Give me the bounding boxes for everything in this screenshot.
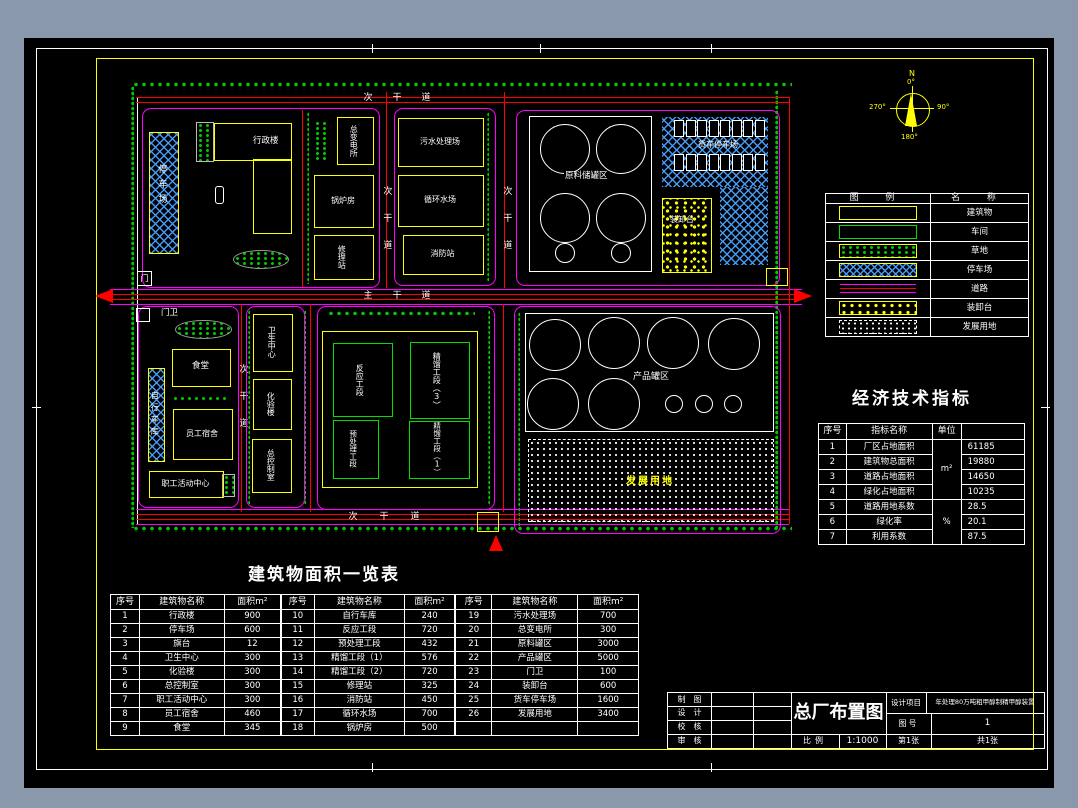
building-cell: 18: [282, 722, 315, 736]
frame-tick: [711, 44, 712, 53]
truck-parking-label: 货车停车场: [698, 140, 738, 149]
building-cell: 700: [405, 708, 455, 722]
econ-cell: 绿化率: [846, 515, 932, 530]
road-line: [136, 97, 789, 98]
building-cell: 10: [282, 610, 315, 624]
econ-table-title: 经济技术指标: [852, 390, 972, 410]
building-row-empty: [456, 722, 639, 736]
building-cell: 450: [405, 694, 455, 708]
building-row: 12预处理工段432: [282, 638, 455, 652]
building-cell: 原料罐区: [492, 638, 578, 652]
product-tank-label: 产品罐区: [633, 372, 669, 382]
legend-building-swatch: [839, 206, 917, 220]
road-arrow-west-icon: [95, 289, 113, 303]
econ-cell: 厂区占地面积: [846, 440, 932, 455]
grass-border-left: [129, 86, 134, 528]
building-cell: 325: [405, 680, 455, 694]
econ-row: 3道路占地面积14650: [819, 470, 1025, 485]
truck-icon: [732, 154, 742, 171]
building-row: 3旗台12: [111, 638, 281, 652]
building-cell: 576: [405, 652, 455, 666]
road-line: [136, 102, 789, 103]
title-block-line: [753, 693, 754, 748]
building-cell: 食堂: [140, 722, 225, 736]
flag-platform: [215, 186, 224, 204]
building-cell: 货车停车场: [492, 694, 578, 708]
parking-lot-label: 停车场: [156, 150, 166, 222]
road-line: [503, 304, 504, 512]
frame-tick: [540, 44, 541, 53]
building-cell: 300: [224, 652, 280, 666]
building-cell: 12: [224, 638, 280, 652]
econ-cell: 4: [819, 485, 847, 500]
compass-0-label: 0°: [907, 79, 915, 86]
econ-cell: 1: [819, 440, 847, 455]
grass-patch: [196, 122, 214, 162]
tank-circle: [588, 317, 640, 369]
building-row: 25货车停车场1600: [456, 694, 639, 708]
building-row: 8员工宿舍460: [111, 708, 281, 722]
building-cell: [492, 722, 578, 736]
econ-cell: 建筑物总面积: [846, 455, 932, 470]
truck-parking-hatch: [720, 187, 768, 265]
building-cell: 修理站: [314, 680, 405, 694]
gate-symbol: 门: [137, 271, 152, 286]
econ-cell: 6: [819, 515, 847, 530]
building-cell: 300: [224, 694, 280, 708]
building-cell: 3: [111, 638, 140, 652]
truck-icon: [755, 120, 765, 137]
building-row: 21原料罐区3000: [456, 638, 639, 652]
building-cell: 职工活动中心: [140, 694, 225, 708]
building-cell: [578, 722, 639, 736]
building-header: 序号: [282, 595, 315, 610]
road-line: [110, 304, 802, 305]
truck-icon: [686, 154, 696, 171]
econ-cell: 2: [819, 455, 847, 470]
building-header: 序号: [111, 595, 140, 610]
building-cell: 11: [282, 624, 315, 638]
building-cell: 720: [405, 666, 455, 680]
building-cell: 460: [224, 708, 280, 722]
building-cell: 行政楼: [140, 610, 225, 624]
building-cell: 9: [111, 722, 140, 736]
building-cell: 总控制室: [140, 680, 225, 694]
truck-icon: [732, 120, 742, 137]
econ-unit-area: m²: [932, 440, 961, 500]
building-cell: 700: [578, 610, 639, 624]
frame-tick: [711, 763, 712, 772]
building-row: 6总控制室300: [111, 680, 281, 694]
tank-circle: [527, 378, 579, 430]
truck-icon: [697, 154, 707, 171]
road-label-secondary-v1: 次干道: [381, 186, 391, 274]
building-header: 建筑物名称: [492, 595, 578, 610]
control-room-label: 总控制室: [266, 443, 275, 487]
grass-patch: [222, 474, 235, 497]
tank-circle: [708, 318, 760, 370]
building-table-group1: 序号建筑物名称面积m²1行政楼9002停车场6003旗台124卫生中心3005化…: [110, 594, 281, 736]
building-cell: 反应工段: [314, 624, 405, 638]
building-cell: 2: [111, 624, 140, 638]
reaction-workshop-label: 反应工段: [355, 350, 364, 410]
road-line: [110, 289, 802, 290]
project-name: 年处理80万吨粗甲醇制精甲醇装置: [926, 693, 1044, 713]
scale-label: 比例: [791, 734, 839, 748]
building-row: 26发展用地3400: [456, 708, 639, 722]
legend-header-symbol: 图 例: [826, 194, 931, 204]
fire-station-label: 消防站: [403, 235, 482, 273]
building-row: 7职工活动中心300: [111, 694, 281, 708]
building-cell: 345: [224, 722, 280, 736]
tank-circle-small: [724, 395, 742, 413]
legend-label: 发展用地: [931, 318, 1029, 337]
building-cell: 锅炉房: [314, 722, 405, 736]
building-header: 序号: [456, 595, 492, 610]
legend-label: 车间: [931, 223, 1029, 242]
raw-tank-label: 原料储罐区: [564, 172, 609, 182]
building-cell: 24: [456, 680, 492, 694]
tank-circle-small: [555, 243, 575, 263]
distillation-workshop-3-label: 精馏工段（3）: [432, 346, 441, 414]
building-cell: 循环水场: [314, 708, 405, 722]
building-cell: 发展用地: [492, 708, 578, 722]
econ-table: 序号指标名称单位1厂区占地面积m²611852建筑物总面积198803道路占地面…: [818, 423, 1025, 545]
econ-cell: 20.1: [961, 515, 1024, 530]
grass-border-top: [132, 82, 792, 87]
grass-strip: [172, 396, 228, 401]
admin-building-label: 行政楼: [253, 137, 279, 147]
econ-row: 2建筑物总面积19880: [819, 455, 1025, 470]
building-header: 面积m²: [224, 595, 280, 610]
building-cell: 25: [456, 694, 492, 708]
building-cell: 4: [111, 652, 140, 666]
substation-label: 总变电所: [349, 121, 358, 161]
econ-row: 6绿化率20.1: [819, 515, 1025, 530]
econ-cell: 利用系数: [846, 530, 932, 545]
building-cell: 7: [111, 694, 140, 708]
building-cell: 900: [224, 610, 280, 624]
truck-icon: [743, 154, 753, 171]
econ-cell: 14650: [961, 470, 1024, 485]
building-cell: 600: [578, 680, 639, 694]
building-cell: 精馏工段（1）: [314, 652, 405, 666]
building-row: 5化验楼300: [111, 666, 281, 680]
building-header: 建筑物名称: [140, 595, 225, 610]
building-cell: 装卸台: [492, 680, 578, 694]
building-cell: 消防站: [314, 694, 405, 708]
loading-dock-label: 装卸台: [670, 215, 694, 224]
building-cell: 8: [111, 708, 140, 722]
sheet-total: 共1张: [931, 734, 1044, 748]
compass-270-label: 270°: [869, 104, 886, 111]
building-cell: 600: [224, 624, 280, 638]
building-row: 2停车场600: [111, 624, 281, 638]
building-table-group3: 序号建筑物名称面积m²19污水处理场70020总变电所30021原料罐区3000…: [455, 594, 639, 736]
tank-circle: [596, 193, 646, 243]
legend-table: 图 例 名 称 建筑物 车间 草地 停车场 道路 装卸台 发展用地: [825, 193, 1029, 337]
building-cell: 停车场: [140, 624, 225, 638]
building-row: 14精馏工段（2）720: [282, 666, 455, 680]
econ-cell: 3: [819, 470, 847, 485]
building-row: 23门卫100: [456, 666, 639, 680]
econ-unit-pct: %: [932, 500, 961, 545]
building-row: 17循环水场700: [282, 708, 455, 722]
building-row: 20总变电所300: [456, 624, 639, 638]
building-cell: 门卫: [492, 666, 578, 680]
boiler-house-label: 锅炉房: [314, 175, 372, 226]
title-block: 制图 设计 校核 审核 总厂布置图 比例 1:1000 设计项目 年处理80万吨…: [667, 692, 1045, 749]
legend-header-name: 名 称: [931, 194, 1029, 204]
tank-circle: [540, 124, 590, 174]
building-row: 4卫生中心300: [111, 652, 281, 666]
building-table-title: 建筑物面积一览表: [248, 566, 400, 586]
road-arrow-south-icon: [489, 535, 503, 551]
building-cell: 13: [282, 652, 315, 666]
tank-circle: [588, 378, 640, 430]
road-arrow-east-icon: [794, 289, 812, 303]
building-row: 22产品罐区5000: [456, 652, 639, 666]
truck-icon: [755, 154, 765, 171]
truck-icon: [697, 120, 707, 137]
truck-icon: [674, 120, 684, 137]
legend-parking-swatch: [839, 263, 917, 277]
building-header: 面积m²: [578, 595, 639, 610]
truck-icon: [686, 120, 696, 137]
building-row: 10自行车库240: [282, 610, 455, 624]
tank-circle: [540, 193, 590, 243]
legend-development-swatch: [839, 320, 917, 334]
building-cell: 1600: [578, 694, 639, 708]
building-row: 11反应工段720: [282, 624, 455, 638]
building-cell: 6: [111, 680, 140, 694]
role-checked: 校核: [668, 720, 711, 734]
building-cell: 19: [456, 610, 492, 624]
building-cell: 5000: [578, 652, 639, 666]
building-cell: 3400: [578, 708, 639, 722]
building-cell: 300: [224, 666, 280, 680]
econ-row: 5道路用地系数%28.5: [819, 500, 1025, 515]
development-land-label: 发展用地: [528, 439, 772, 520]
health-center-label: 卫生中心: [267, 318, 276, 366]
distillation-workshop-1-label: 精馏工段（1）: [432, 423, 441, 475]
frame-tick: [372, 44, 373, 53]
econ-header: 指标名称: [846, 424, 932, 440]
legend-label: 停车场: [931, 261, 1029, 280]
legend-label: 道路: [931, 280, 1029, 299]
building-cell: 预处理工段: [314, 638, 405, 652]
compass-north-label: N: [909, 70, 915, 78]
title-block-line: [711, 693, 712, 748]
truck-icon: [709, 120, 719, 137]
econ-cell: 5: [819, 500, 847, 515]
econ-cell: 10235: [961, 485, 1024, 500]
building-cell: 17: [282, 708, 315, 722]
building-cell: 100: [578, 666, 639, 680]
grass-patch: [314, 121, 327, 161]
econ-cell: 19880: [961, 455, 1024, 470]
building-table-group2: 序号建筑物名称面积m²10自行车库24011反应工段72012预处理工段4321…: [281, 594, 455, 736]
econ-cell: 61185: [961, 440, 1024, 455]
building-cell: 14: [282, 666, 315, 680]
building-cell: 720: [405, 624, 455, 638]
econ-cell: 道路用地系数: [846, 500, 932, 515]
econ-cell: 7: [819, 530, 847, 545]
building-cell: 23: [456, 666, 492, 680]
truck-icon: [674, 154, 684, 171]
building-row: 16消防站450: [282, 694, 455, 708]
building-header: 建筑物名称: [314, 595, 405, 610]
building-row: 13精馏工段（1）576: [282, 652, 455, 666]
econ-row: 1厂区占地面积m²61185: [819, 440, 1025, 455]
legend-loading-swatch: [839, 301, 917, 315]
econ-cell: 87.5: [961, 530, 1024, 545]
sheet-index: 第1张: [886, 734, 931, 748]
road-label-main: 主干道: [352, 291, 462, 301]
truck-icon: [743, 120, 753, 137]
building-cell: 精馏工段（2）: [314, 666, 405, 680]
building-row: 19污水处理场700: [456, 610, 639, 624]
north-arrow-icon: [905, 93, 917, 126]
circulating-water-label: 循环水场: [398, 175, 482, 225]
building-cell: 5: [111, 666, 140, 680]
building-cell: 432: [405, 638, 455, 652]
legend-grass-swatch: [839, 244, 917, 258]
activity-center-label: 职工活动中心: [149, 471, 222, 496]
building-cell: 自行车库: [314, 610, 405, 624]
building-header: 面积m²: [405, 595, 455, 610]
pretreatment-workshop-label: 预处理工段: [348, 423, 357, 475]
grass-oval: [233, 250, 289, 269]
truck-icon: [720, 154, 730, 171]
legend-label: 草地: [931, 242, 1029, 261]
compass-180-label: 180°: [901, 134, 918, 141]
econ-header: [961, 424, 1024, 440]
drawing-title: 总厂布置图: [791, 693, 886, 734]
building-cell: 卫生中心: [140, 652, 225, 666]
role-designed: 设计: [668, 706, 711, 720]
canteen-label: 食堂: [172, 349, 229, 385]
road-label-secondary-v2: 次干道: [501, 186, 511, 274]
loading-dock-area: [662, 198, 712, 273]
role-drawn: 制图: [668, 693, 711, 706]
sheet-no-label: 图号: [886, 713, 931, 734]
bike-garage-label: 自行车库: [150, 378, 159, 452]
building-row: 15修理站325: [282, 680, 455, 694]
frame-tick: [372, 763, 373, 772]
gate-box-ne: [766, 268, 788, 286]
truck-icon: [720, 120, 730, 137]
repair-station-label: 修理站: [337, 238, 346, 276]
legend-road-swatch: [840, 283, 916, 295]
road-line: [310, 304, 311, 512]
legend-label: 建筑物: [931, 204, 1029, 223]
building-cell: 22: [456, 652, 492, 666]
building-row: 18锅炉房500: [282, 722, 455, 736]
building-cell: [456, 722, 492, 736]
building-row: 1行政楼900: [111, 610, 281, 624]
legend-label: 装卸台: [931, 299, 1029, 318]
econ-cell: 绿化占地面积: [846, 485, 932, 500]
compass-90-label: 90°: [937, 104, 949, 111]
scale-value: 1:1000: [839, 734, 886, 748]
building-cell: 总变电所: [492, 624, 578, 638]
building-cell: 20: [456, 624, 492, 638]
legend-workshop-swatch: [839, 225, 917, 239]
project-label: 设计项目: [886, 693, 926, 713]
econ-header: 单位: [932, 424, 961, 440]
building-row: 24装卸台600: [456, 680, 639, 694]
econ-cell: 道路占地面积: [846, 470, 932, 485]
sheet-no-value: 1: [931, 713, 1044, 734]
building-cell: 污水处理场: [492, 610, 578, 624]
building-cell: 3000: [578, 638, 639, 652]
grass-oval: [175, 320, 232, 339]
building-cell: 15: [282, 680, 315, 694]
tank-circle: [596, 124, 646, 174]
frame-tick: [1041, 407, 1050, 408]
gatehouse-box: [136, 308, 150, 322]
gatehouse-label: 门卫: [161, 309, 178, 319]
building-row: 9食堂345: [111, 722, 281, 736]
tank-circle-small: [665, 395, 683, 413]
building-cell: 员工宿舍: [140, 708, 225, 722]
building-cell: 12: [282, 638, 315, 652]
admin-building-wing: [253, 159, 292, 234]
tank-circle-small: [611, 243, 631, 263]
building-cell: 240: [405, 610, 455, 624]
frame-tick: [32, 407, 41, 408]
econ-header: 序号: [819, 424, 847, 440]
tank-circle-small: [695, 395, 713, 413]
sewage-plant-label: 污水处理场: [398, 118, 482, 165]
building-cell: 旗台: [140, 638, 225, 652]
building-cell: 500: [405, 722, 455, 736]
lab-building-label: 化验楼: [266, 384, 275, 424]
building-cell: 300: [224, 680, 280, 694]
building-cell: 化验楼: [140, 666, 225, 680]
cad-drawing-viewport: 次干道 主干道 次干道 次干道 次干道 次干道 停车场 行政楼 总变电所 锅炉房…: [0, 0, 1078, 808]
building-cell: 26: [456, 708, 492, 722]
tank-circle: [647, 317, 699, 369]
road-label-secondary-bottom: 次干道: [340, 512, 450, 522]
building-cell: 21: [456, 638, 492, 652]
road-line: [789, 97, 790, 524]
econ-row: 7利用系数87.5: [819, 530, 1025, 545]
truck-icon: [709, 154, 719, 171]
role-reviewed: 审核: [668, 734, 711, 748]
building-cell: 产品罐区: [492, 652, 578, 666]
building-cell: 1: [111, 610, 140, 624]
tank-circle: [529, 319, 581, 371]
econ-cell: 28.5: [961, 500, 1024, 515]
econ-row: 4绿化占地面积10235: [819, 485, 1025, 500]
building-cell: 16: [282, 694, 315, 708]
road-label-secondary-top: 次干道: [352, 93, 462, 103]
dormitory-label: 员工宿舍: [173, 409, 231, 458]
building-cell: 300: [578, 624, 639, 638]
gate-box-south: [477, 512, 499, 532]
